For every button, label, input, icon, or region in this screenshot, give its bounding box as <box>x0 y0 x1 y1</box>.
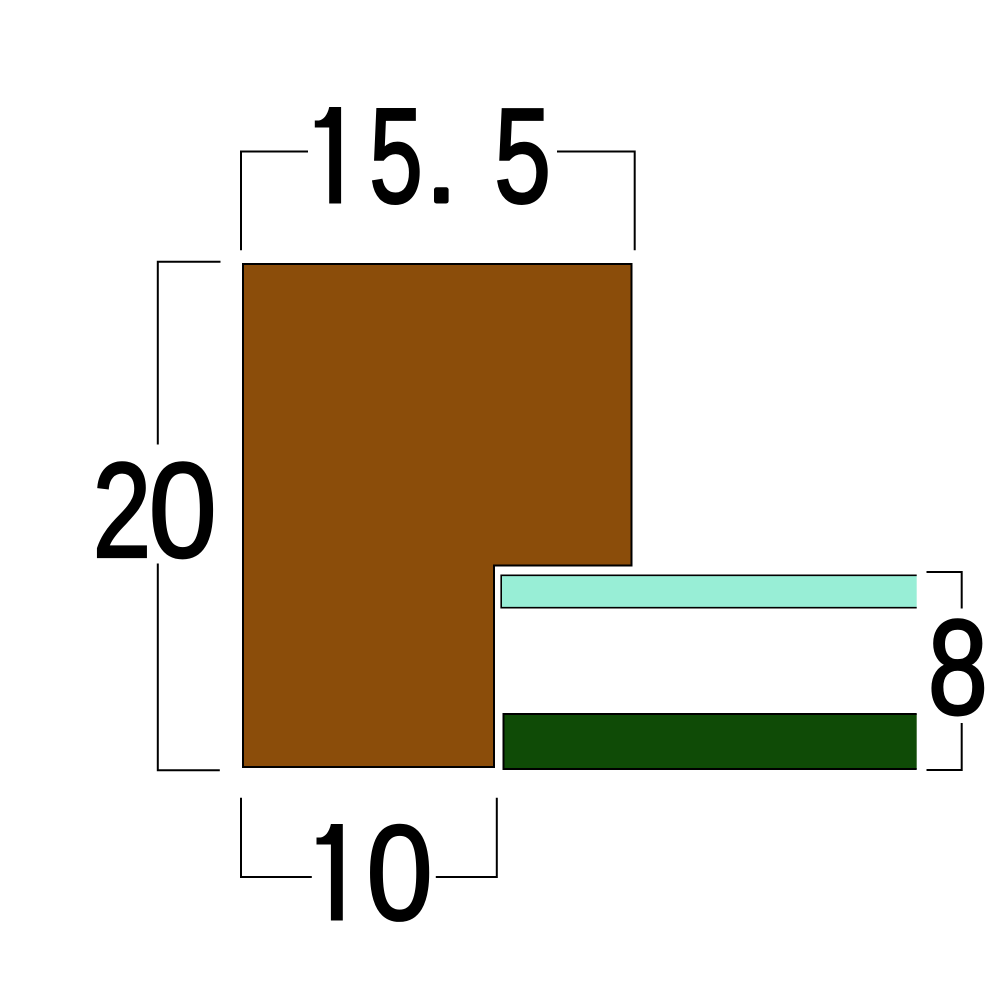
svg-text:0: 0 <box>367 797 433 948</box>
svg-text:5: 5 <box>369 80 422 231</box>
svg-text:5: 5 <box>494 82 551 232</box>
svg-text:0: 0 <box>149 435 217 586</box>
svg-text:2: 2 <box>93 434 151 586</box>
svg-text:8: 8 <box>928 591 988 742</box>
